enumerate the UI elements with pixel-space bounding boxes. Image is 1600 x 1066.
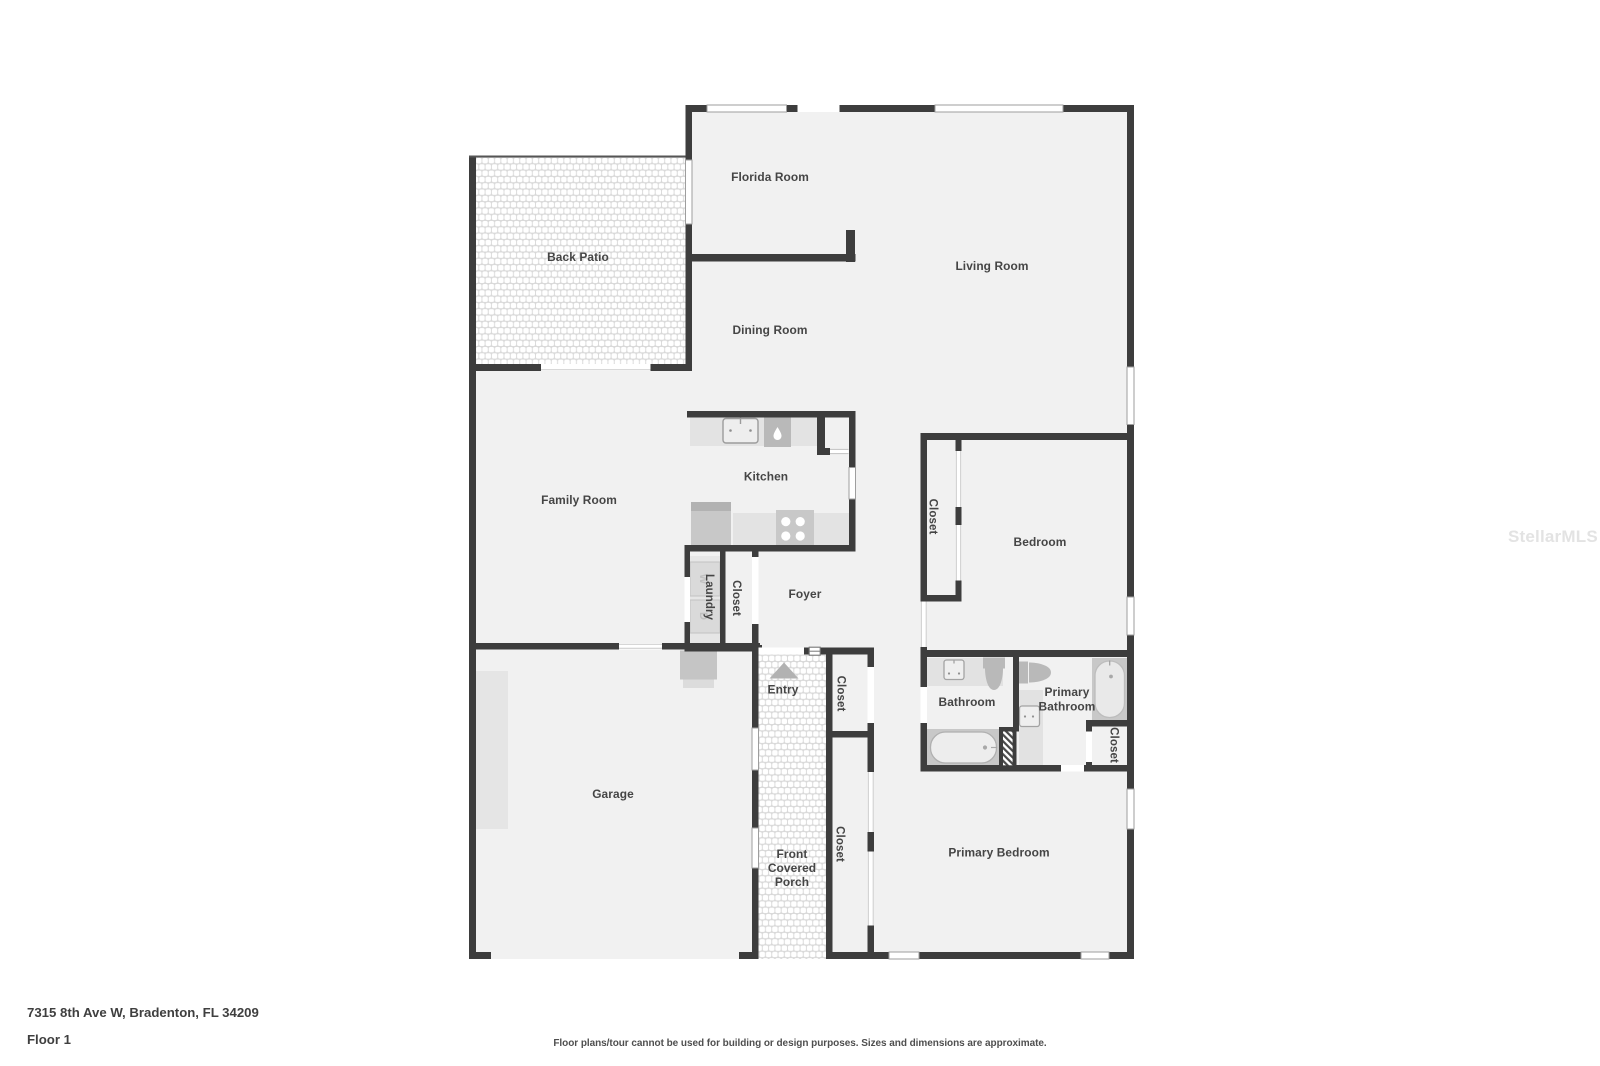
svg-text:Closet: Closet: [1108, 727, 1120, 763]
svg-text:Primary: Primary: [1045, 685, 1090, 699]
svg-text:Bedroom: Bedroom: [1014, 535, 1067, 549]
svg-text:Front: Front: [777, 847, 808, 861]
svg-text:Garage: Garage: [592, 787, 634, 801]
svg-text:Laundry: Laundry: [703, 574, 715, 621]
svg-text:Entry: Entry: [768, 683, 799, 697]
svg-text:Closet: Closet: [730, 580, 742, 616]
svg-text:Covered: Covered: [768, 861, 816, 875]
svg-text:Porch: Porch: [775, 875, 809, 889]
svg-text:Primary Bedroom: Primary Bedroom: [948, 846, 1049, 860]
svg-text:Florida Room: Florida Room: [731, 170, 809, 184]
svg-text:Family Room: Family Room: [541, 493, 617, 507]
svg-text:Closet: Closet: [835, 676, 847, 712]
svg-text:7315 8th Ave W, Bradenton, FL: 7315 8th Ave W, Bradenton, FL 34209: [27, 1005, 259, 1020]
svg-text:Dining Room: Dining Room: [732, 323, 807, 337]
svg-text:Foyer: Foyer: [789, 587, 822, 601]
svg-text:Closet: Closet: [927, 499, 939, 535]
svg-text:Floor plans/tour cannot be use: Floor plans/tour cannot be used for buil…: [553, 1038, 1047, 1049]
svg-text:Bathroom: Bathroom: [939, 695, 996, 709]
svg-text:Closet: Closet: [834, 826, 846, 862]
svg-text:Kitchen: Kitchen: [744, 470, 788, 484]
svg-text:StellarMLS: StellarMLS: [1508, 527, 1598, 546]
svg-text:Floor 1: Floor 1: [27, 1032, 71, 1047]
svg-text:Bathroom: Bathroom: [1039, 700, 1096, 714]
svg-text:Back Patio: Back Patio: [547, 250, 609, 264]
svg-text:Living Room: Living Room: [955, 259, 1028, 273]
